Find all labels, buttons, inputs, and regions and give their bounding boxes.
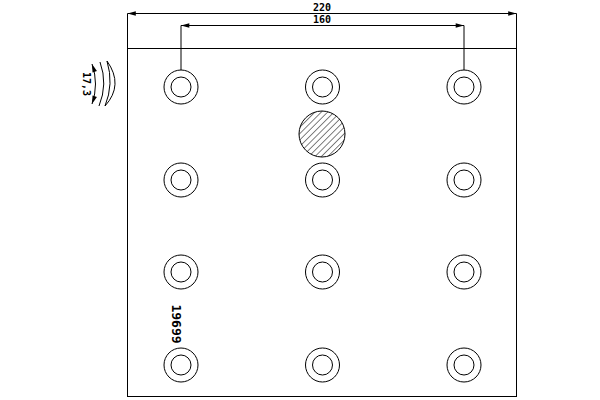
dimension-hole-span: 160 xyxy=(181,14,464,70)
hole-circle xyxy=(313,262,333,282)
hole-circle xyxy=(454,355,474,375)
hole-circle xyxy=(164,348,198,382)
hole-circle xyxy=(313,355,333,375)
hole-circle xyxy=(454,77,474,97)
hole-circle xyxy=(171,355,191,375)
thickness-label: 17,3 xyxy=(81,72,92,96)
hole-circle xyxy=(164,255,198,289)
dimension-overall-width-label: 220 xyxy=(313,2,331,13)
hole-circle xyxy=(171,262,191,282)
lining-cross-section-crescent xyxy=(105,61,115,106)
hatched-hole xyxy=(299,111,345,157)
plate-outline xyxy=(128,49,517,397)
hole-circle xyxy=(447,70,481,104)
hole-circle xyxy=(306,348,340,382)
hole-circle xyxy=(306,255,340,289)
hole-circle xyxy=(306,163,340,197)
technical-drawing-canvas: 220 160 17,3 19699 xyxy=(0,0,600,400)
curvature-symbol: 17,3 xyxy=(81,61,115,106)
hole-circle xyxy=(454,262,474,282)
hole-circle xyxy=(306,70,340,104)
lining-cross-section-inner-arc xyxy=(99,62,104,106)
hole-circle xyxy=(447,255,481,289)
hole-circle xyxy=(447,348,481,382)
hole-circle xyxy=(313,77,333,97)
hole-circle xyxy=(171,77,191,97)
hole-circle xyxy=(447,163,481,197)
hole-circle xyxy=(454,170,474,190)
hole-circle xyxy=(164,70,198,104)
hole-circle xyxy=(164,163,198,197)
part-number-label: 19699 xyxy=(169,304,184,343)
hole-circle xyxy=(313,170,333,190)
brake-lining-drawing: 220 160 17,3 19699 xyxy=(0,0,600,400)
hole-circle xyxy=(171,170,191,190)
dimension-hole-span-label: 160 xyxy=(313,14,331,25)
